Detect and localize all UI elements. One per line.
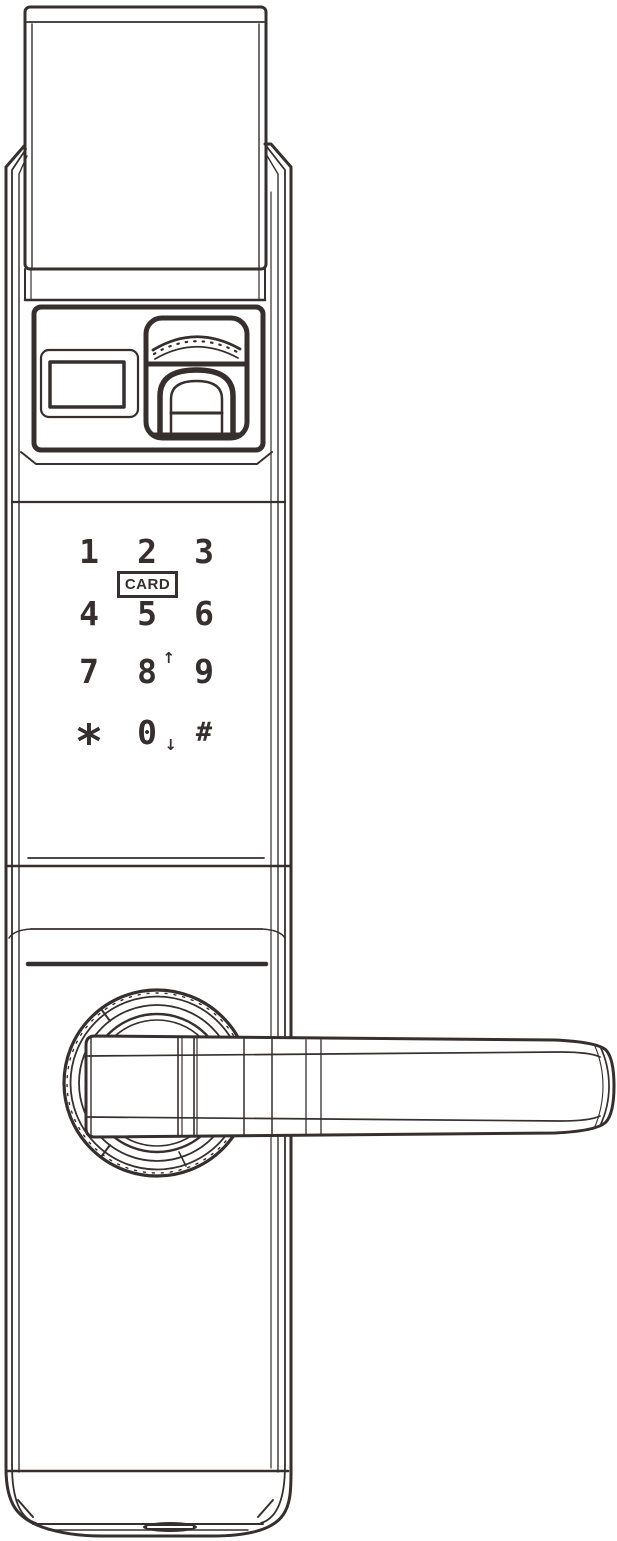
key-4-label: 4 xyxy=(79,597,99,630)
keypad-key-hash[interactable]: # xyxy=(180,708,228,756)
door-lock-illustration xyxy=(0,0,617,1541)
keypad-key-4[interactable]: 4 xyxy=(65,589,113,637)
key-8-label: 8 xyxy=(137,655,157,688)
keypad-key-0[interactable]: 0 ↓ xyxy=(123,708,171,756)
smart-door-lock: 1 2 3 CARD 4 5 6 7 8 ↑ 9 * 0 ↓ # xyxy=(0,0,617,1541)
key-9-label: 9 xyxy=(194,655,214,688)
key-3-label: 3 xyxy=(194,535,214,568)
keypad-key-7[interactable]: 7 xyxy=(65,647,113,695)
keypad-key-9[interactable]: 9 xyxy=(180,647,228,695)
keypad-key-3[interactable]: 3 xyxy=(180,527,228,575)
keypad-lower-seams xyxy=(7,858,290,964)
keypad-key-5[interactable]: 5 xyxy=(123,589,171,637)
top-cap xyxy=(25,7,266,300)
key-star-label: * xyxy=(75,719,103,766)
keypad-key-star[interactable]: * xyxy=(65,708,113,756)
bottom-section xyxy=(8,1471,288,1532)
key-7-label: 7 xyxy=(79,655,99,688)
display-window xyxy=(41,350,138,417)
key-5-label: 5 xyxy=(137,597,157,630)
keypad-key-6[interactable]: 6 xyxy=(180,589,228,637)
scroll-down-arrow-icon: ↓ xyxy=(164,738,177,753)
keypad-key-1[interactable]: 1 xyxy=(65,527,113,575)
key-hash-label: # xyxy=(196,719,212,746)
key-1-label: 1 xyxy=(79,535,99,568)
panel-seams xyxy=(12,452,285,502)
keypad-key-8[interactable]: 8 ↑ xyxy=(123,647,171,695)
keypad-key-2[interactable]: 2 xyxy=(123,527,171,575)
key-0-label: 0 xyxy=(137,716,157,749)
door-handle-lever[interactable] xyxy=(86,1036,614,1137)
key-6-label: 6 xyxy=(194,597,214,630)
fingerprint-reader[interactable] xyxy=(146,318,247,438)
scroll-up-arrow-icon: ↑ xyxy=(162,651,175,666)
key-2-label: 2 xyxy=(137,535,157,568)
